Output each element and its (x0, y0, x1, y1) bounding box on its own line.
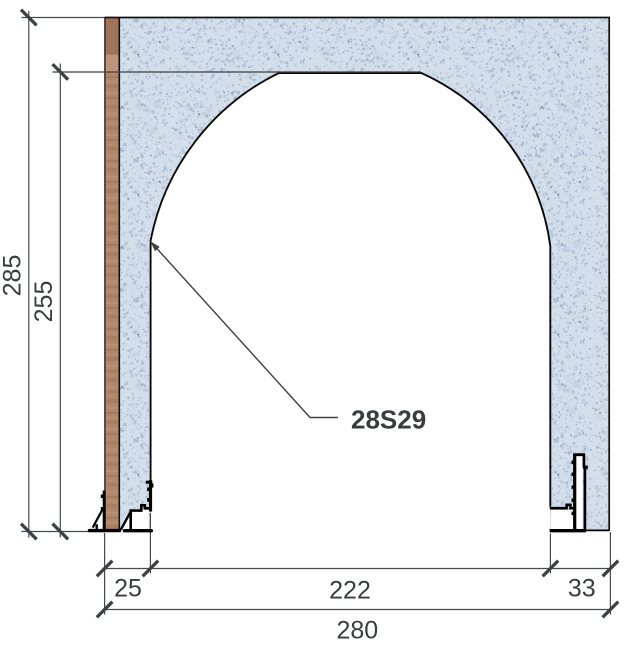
svg-text:280: 280 (336, 617, 378, 645)
svg-text:33: 33 (568, 575, 596, 603)
svg-text:255: 255 (30, 281, 58, 323)
svg-text:25: 25 (114, 575, 142, 603)
svg-text:28S29: 28S29 (351, 405, 426, 435)
svg-text:285: 285 (0, 255, 27, 297)
svg-text:222: 222 (329, 577, 371, 605)
